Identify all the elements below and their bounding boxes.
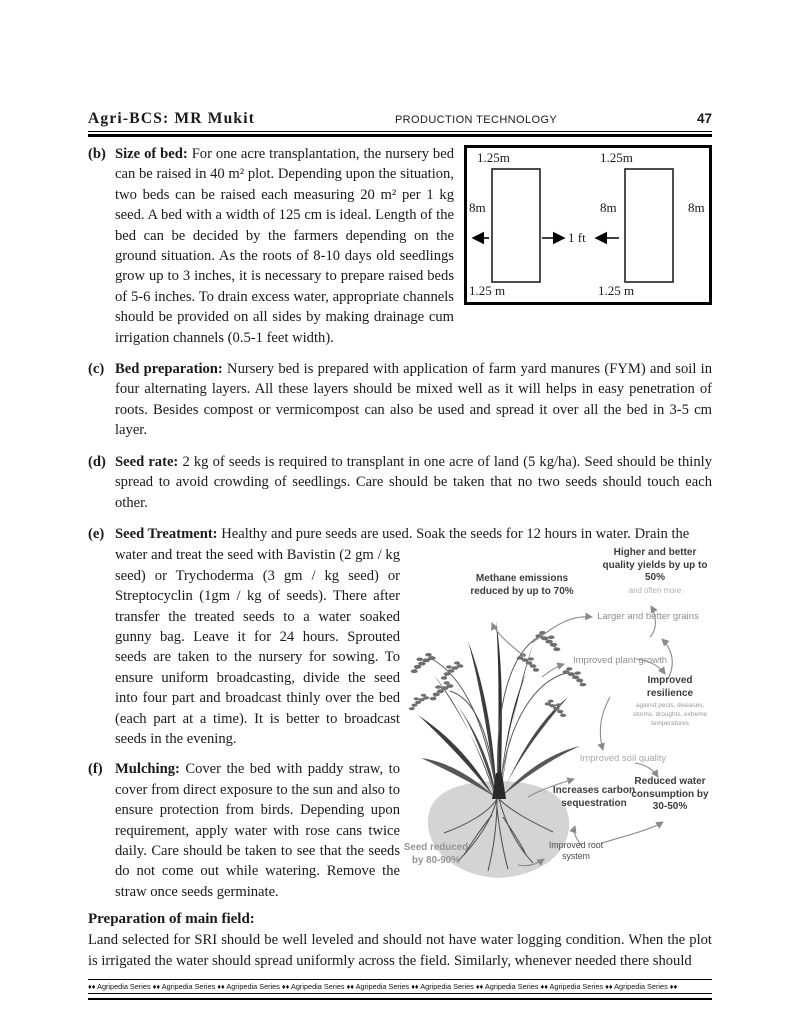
label-resilience-sub: against pests, diseases, storms, drought… xyxy=(628,702,712,728)
label-higher-yields: Higher and better quality yields by up t… xyxy=(598,547,712,595)
label-plant-growth: Improved plant growth xyxy=(568,655,672,667)
label-resilience-text: Improved resilience xyxy=(647,675,693,699)
footer-series-band: ♦♦ Agripedia Series ♦♦ Agripedia Series … xyxy=(88,979,712,995)
panicle-cluster xyxy=(441,662,464,680)
main-field-heading: Preparation of main field: xyxy=(88,911,712,928)
section-d-label: (d) xyxy=(88,452,106,472)
section-d: (d)Seed rate: 2 kg of seeds is required … xyxy=(88,452,712,513)
section-e-continuation: water and treat the seed with Bavistin (… xyxy=(88,545,400,749)
label-higher-yields-sub: and often more xyxy=(598,586,712,596)
section-e-label: (e) xyxy=(88,524,104,544)
document-page: Agri-BCS: MR Mukit PRODUCTION TECHNOLOGY… xyxy=(0,0,800,1035)
label-root-system: Improved root system xyxy=(540,840,612,862)
section-e-lead: (e)Seed Treatment: Healthy and pure seed… xyxy=(88,524,712,544)
page-number: 47 xyxy=(697,111,712,126)
header-book-title: Agri-BCS: MR Mukit xyxy=(88,110,255,128)
dim-gap: 1 ft xyxy=(568,230,586,246)
page-header: Agri-BCS: MR Mukit PRODUCTION TECHNOLOGY… xyxy=(88,110,712,128)
main-field-text: Land selected for SRI should be well lev… xyxy=(88,930,712,972)
text-column: water and treat the seed with Bavistin (… xyxy=(88,545,400,902)
panicle-cluster xyxy=(535,631,560,651)
label-higher-yields-text: Higher and better quality yields by up t… xyxy=(602,547,707,583)
dim-bottom-right: 1.25 m xyxy=(598,283,634,299)
header-chapter-title: PRODUCTION TECHNOLOGY xyxy=(255,114,697,126)
label-water: Reduced water consumption by 30-50% xyxy=(628,776,712,814)
label-seed-reduced: Seed reduced by 80-90% xyxy=(400,842,472,866)
bed-right-rect xyxy=(625,169,673,282)
panicle-cluster xyxy=(409,694,429,710)
label-carbon: Increases carbon sequestration xyxy=(548,785,640,810)
label-larger-grains: Larger and better grains xyxy=(596,611,700,623)
section-c-label: (c) xyxy=(88,359,104,379)
section-d-text: 2 kg of seeds is required to transplant … xyxy=(115,454,712,511)
section-b-text: For one acre transplantation, the nurser… xyxy=(115,146,454,346)
dim-top-right: 1.25m xyxy=(600,150,633,166)
section-d-title: Seed rate: xyxy=(115,454,178,470)
bed-left-rect xyxy=(492,169,540,282)
footer-rule xyxy=(88,998,712,1000)
header-rule-thin xyxy=(88,131,712,132)
panicle-cluster xyxy=(563,668,587,687)
sri-illustration: Methane emissions reduced by up to 70% H… xyxy=(400,545,712,887)
label-resilience: Improved resilience against pests, disea… xyxy=(628,675,712,728)
label-soil-quality: Improved soil quality xyxy=(576,753,670,765)
columns-row: water and treat the seed with Bavistin (… xyxy=(88,545,712,902)
dim-side-mid: 8m xyxy=(600,200,617,216)
section-b-label: (b) xyxy=(88,144,106,164)
section-e-line1: Healthy and pure seeds are used. Soak th… xyxy=(221,526,689,542)
section-f-text: Cover the bed with paddy straw, to cover… xyxy=(115,761,400,899)
section-b-row: (b)Size of bed: For one acre transplanta… xyxy=(88,144,712,348)
panicle-cluster xyxy=(411,653,436,673)
dim-bottom-left: 1.25 m xyxy=(469,283,505,299)
dim-side-right: 8m xyxy=(688,200,705,216)
label-methane: Methane emissions reduced by up to 70% xyxy=(464,573,580,598)
nursery-bed-diagram: 1.25m 1.25m 8m 8m 8m 1 ft 1.25 m 1.25 m xyxy=(464,145,712,305)
section-f: (f)Mulching: Cover the bed with paddy st… xyxy=(88,759,400,902)
section-c-title: Bed preparation: xyxy=(115,361,223,377)
section-b-title: Size of bed: xyxy=(115,146,188,162)
bed-diagram-graphics xyxy=(467,148,709,302)
header-rule-thick xyxy=(88,134,712,137)
dim-top-left: 1.25m xyxy=(477,150,510,166)
dim-side-left: 8m xyxy=(469,200,486,216)
section-f-label: (f) xyxy=(88,759,103,779)
section-c: (c)Bed preparation: Nursery bed is prepa… xyxy=(88,359,712,441)
section-f-title: Mulching: xyxy=(115,761,180,777)
section-e-title: Seed Treatment: xyxy=(115,526,218,542)
section-b: (b)Size of bed: For one acre transplanta… xyxy=(88,144,454,348)
